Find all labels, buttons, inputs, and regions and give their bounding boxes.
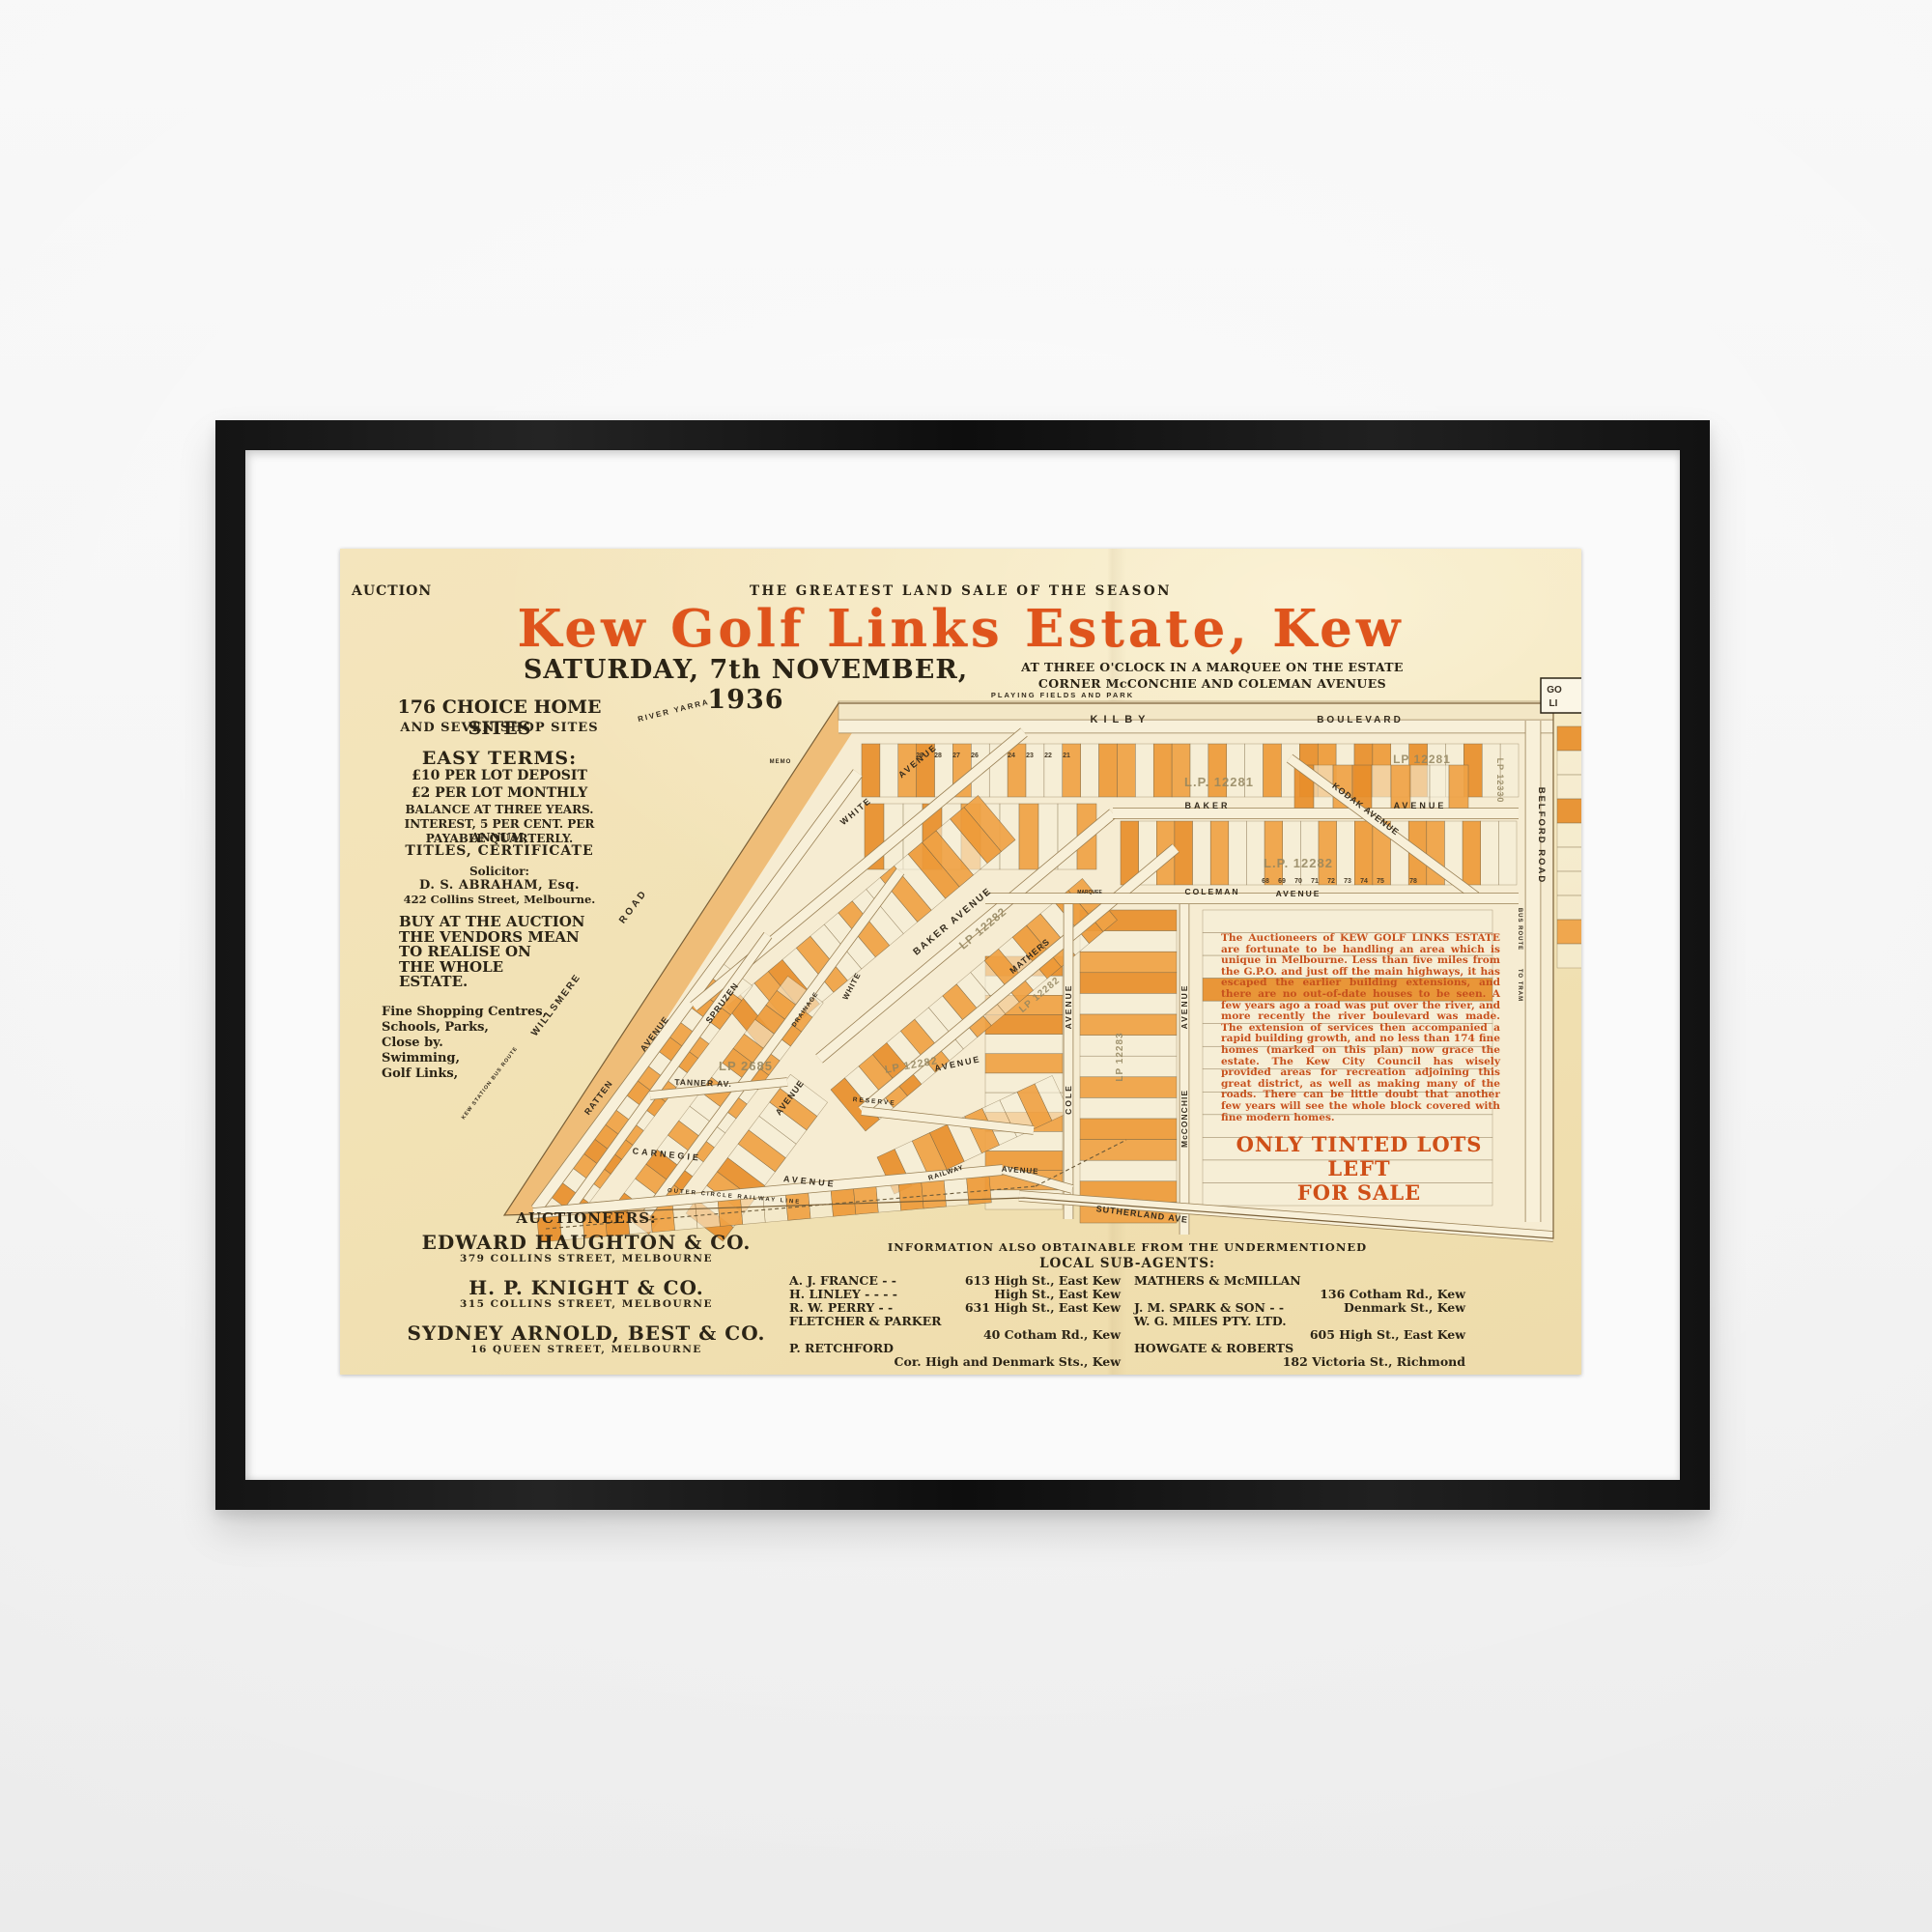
lot xyxy=(1557,895,1581,920)
lot xyxy=(1019,804,1038,869)
lot-number: 74 xyxy=(1360,878,1368,885)
street-label: WILLSMERE xyxy=(529,972,583,1038)
golf-links-tag-line: LI xyxy=(1549,698,1558,709)
lot xyxy=(1080,1140,1177,1161)
street-label: BAKER xyxy=(1184,801,1230,810)
lot xyxy=(1557,751,1581,775)
sub-agent-name: HOWGATE & ROBERTS xyxy=(1134,1342,1293,1355)
tinted-lots-line1: ONLY TINTED LOTS LEFT xyxy=(1214,1132,1504,1180)
lot xyxy=(1557,847,1581,871)
street-label: ROAD xyxy=(617,888,650,926)
estate-description: The Auctioneers of KEW GOLF LINKS ESTATE… xyxy=(1221,933,1500,1123)
lot xyxy=(1080,1160,1177,1181)
lot-number: 75 xyxy=(1377,878,1384,885)
lot-number: 22 xyxy=(1044,753,1052,759)
tagline: THE GREATEST LAND SALE OF THE SEASON xyxy=(340,583,1581,599)
auctioneer-firm-name: H. P. KNIGHT & CO. xyxy=(379,1277,794,1298)
picture-frame: AUCTION THE GREATEST LAND SALE OF THE SE… xyxy=(215,420,1710,1510)
lot xyxy=(1080,1014,1177,1036)
lot xyxy=(1557,775,1581,799)
plan-number-label: L.P. 12281 xyxy=(1184,775,1254,789)
lot xyxy=(985,1054,1063,1073)
lot xyxy=(1557,920,1581,944)
street-label: KILBY xyxy=(1091,714,1151,725)
street-label: COLE xyxy=(1064,1084,1073,1115)
park-strip xyxy=(838,701,1553,721)
lot-block xyxy=(1080,910,1177,1223)
lot xyxy=(1193,821,1211,885)
street-label: KEW STATION BUS ROUTE xyxy=(461,1046,520,1122)
lot xyxy=(1080,973,1177,994)
sub-agent-address: Cor. High and Denmark Sts., Kew xyxy=(789,1355,1121,1369)
street-label: AVENUE xyxy=(1394,801,1447,810)
golf-links-tag-line: GO xyxy=(1547,685,1562,696)
lot xyxy=(1283,821,1301,885)
sub-agents-left-column: A. J. FRANCE - -613 High St., East KewH.… xyxy=(789,1274,1121,1369)
street-label: AVENUE xyxy=(1064,984,1073,1030)
sub-agents-heading2: LOCAL SUB-AGENTS: xyxy=(789,1256,1465,1271)
lot xyxy=(1080,1036,1177,1057)
sub-agent-row: FLETCHER & PARKER xyxy=(789,1315,1121,1328)
sub-agent-row: W. G. MILES PTY. LTD. xyxy=(1134,1315,1465,1328)
sub-agent-name: R. W. PERRY - - xyxy=(789,1301,893,1315)
lot-number: 27 xyxy=(952,753,960,759)
lot-number: 24 xyxy=(1008,753,1015,759)
sub-agent-row: H. LINLEY - - - -High St., East Kew xyxy=(789,1288,1121,1301)
lot xyxy=(1264,744,1282,797)
lot-block xyxy=(1121,821,1517,885)
sub-agent-row: 605 High St., East Kew xyxy=(1134,1328,1465,1342)
street-label: PLAYING FIELDS AND PARK xyxy=(991,691,1134,699)
street-label: BOULEVARD xyxy=(1317,715,1404,725)
lot xyxy=(1372,765,1391,810)
lot-number: 68 xyxy=(1262,878,1269,885)
lot xyxy=(1210,821,1229,885)
sub-agent-row: 136 Cotham Rd., Kew xyxy=(1134,1288,1465,1301)
auctioneer-firm-name: EDWARD HAUGHTON & CO. xyxy=(379,1232,794,1253)
street-label: TO TRAM xyxy=(1517,969,1522,1002)
lot-number: 26 xyxy=(971,753,979,759)
lot xyxy=(1557,944,1581,968)
sub-agent-name: H. LINLEY - - - - xyxy=(789,1288,897,1301)
sub-agent-address: 182 Victoria St., Richmond xyxy=(1134,1355,1465,1369)
auctioneer-firm-name: SYDNEY ARNOLD, BEST & CO. xyxy=(379,1322,794,1344)
sub-agent-address: Denmark St., Kew xyxy=(1344,1301,1465,1315)
sub-agent-address: 605 High St., East Kew xyxy=(1134,1328,1465,1342)
plan-number-label: LP 2685 xyxy=(719,1059,773,1073)
lot xyxy=(1117,744,1135,797)
lot-number: 69 xyxy=(1278,878,1286,885)
sub-agent-name: FLETCHER & PARKER xyxy=(789,1315,942,1328)
lot xyxy=(1080,1097,1177,1119)
lot xyxy=(1081,744,1099,797)
sub-agents-right-column: MATHERS & McMILLAN136 Cotham Rd., KewJ. … xyxy=(1134,1274,1465,1369)
golf-links-tag xyxy=(1541,678,1581,713)
lot xyxy=(1449,765,1468,810)
lot xyxy=(1080,1056,1177,1077)
plan-number-label: L.P. 12282 xyxy=(1264,856,1333,870)
lot xyxy=(1135,744,1153,797)
lot-number: 71 xyxy=(1311,878,1319,885)
sub-agent-name: A. J. FRANCE - - xyxy=(789,1274,896,1288)
lot xyxy=(1319,821,1337,885)
lot xyxy=(1153,744,1172,797)
sub-agent-row: HOWGATE & ROBERTS xyxy=(1134,1342,1465,1355)
street-label: AVENUE xyxy=(1276,889,1321,898)
lot xyxy=(1498,821,1517,885)
poster: AUCTION THE GREATEST LAND SALE OF THE SE… xyxy=(340,549,1581,1375)
sub-agents-heading1: INFORMATION ALSO OBTAINABLE FROM THE UND… xyxy=(789,1240,1465,1254)
lot xyxy=(1463,821,1481,885)
lot xyxy=(1354,821,1373,885)
lot xyxy=(1557,799,1581,823)
lot xyxy=(1481,821,1499,885)
wall: AUCTION THE GREATEST LAND SALE OF THE SE… xyxy=(0,0,1932,1932)
lot xyxy=(1557,823,1581,847)
lot xyxy=(1080,1119,1177,1140)
sub-agent-name: P. RETCHFORD xyxy=(789,1342,894,1355)
street-label: COLEMAN xyxy=(1185,887,1240,896)
sub-agent-address: 613 High St., East Kew xyxy=(965,1274,1121,1288)
plan-number-label: LP 12330 xyxy=(1495,758,1505,804)
auctioneers-block: AUCTIONEERS: EDWARD HAUGHTON & CO.379 CO… xyxy=(379,1209,794,1368)
lot-number: 21 xyxy=(1063,753,1070,759)
lot-block xyxy=(1557,726,1581,968)
lot xyxy=(1557,871,1581,895)
sub-agent-row: P. RETCHFORD xyxy=(789,1342,1121,1355)
lot xyxy=(985,1035,1063,1054)
lot xyxy=(1264,821,1283,885)
sub-agent-address: 136 Cotham Rd., Kew xyxy=(1134,1288,1465,1301)
lot xyxy=(1080,952,1177,973)
mat-board: AUCTION THE GREATEST LAND SALE OF THE SE… xyxy=(245,450,1680,1480)
lot xyxy=(1080,1077,1177,1098)
street-label: McCONCHIE xyxy=(1179,1090,1189,1148)
sub-agent-address: 40 Cotham Rd., Kew xyxy=(789,1328,1121,1342)
poster-title: Kew Golf Links Estate, Kew xyxy=(340,599,1581,659)
plan-number-label: LP 12283 xyxy=(1115,1032,1125,1081)
auctioneer-firm-address: 315 COLLINS STREET, MELBOURNE xyxy=(379,1298,794,1310)
sub-agent-row: J. M. SPARK & SON - -Denmark St., Kew xyxy=(1134,1301,1465,1315)
sub-agent-address: High St., East Kew xyxy=(994,1288,1121,1301)
sub-agents-columns: A. J. FRANCE - -613 High St., East KewH.… xyxy=(789,1274,1465,1369)
street-label: MEMO xyxy=(770,759,792,765)
lot xyxy=(1203,910,1492,933)
lot-number: 78 xyxy=(1409,878,1417,885)
lot-number: 23 xyxy=(1026,753,1034,759)
lot-number: 28 xyxy=(934,753,942,759)
lot xyxy=(1080,993,1177,1014)
auctioneer-firm-address: 379 COLLINS STREET, MELBOURNE xyxy=(379,1253,794,1264)
sub-agent-row: R. W. PERRY - -631 High St., East Kew xyxy=(789,1301,1121,1315)
sub-agents-block: INFORMATION ALSO OBTAINABLE FROM THE UND… xyxy=(789,1240,1465,1369)
lot xyxy=(880,744,898,797)
amenity-line: Close by. xyxy=(382,1036,443,1050)
sub-agent-address: 631 High St., East Kew xyxy=(965,1301,1121,1315)
street-label: TANNER AV. xyxy=(674,1077,732,1089)
sub-agent-row: 182 Victoria St., Richmond xyxy=(1134,1355,1465,1369)
sub-agent-row: MATHERS & McMILLAN xyxy=(1134,1274,1465,1288)
street-label: BELFORD ROAD xyxy=(1536,787,1547,885)
sub-agent-row: 40 Cotham Rd., Kew xyxy=(789,1328,1121,1342)
auctioneers-heading: AUCTIONEERS: xyxy=(379,1209,794,1227)
lot xyxy=(1246,821,1264,885)
lot xyxy=(1337,821,1355,885)
firms-list: EDWARD HAUGHTON & CO.379 COLLINS STREET,… xyxy=(379,1232,794,1355)
sub-agent-row: A. J. FRANCE - -613 High St., East Kew xyxy=(789,1274,1121,1288)
auctioneer-firm-address: 16 QUEEN STREET, MELBOURNE xyxy=(379,1344,794,1355)
street-label: RIVER YARRA xyxy=(637,697,710,724)
lot-number: 72 xyxy=(1327,878,1335,885)
tinted-lots-note: ONLY TINTED LOTS LEFT FOR SALE xyxy=(1214,1132,1504,1205)
lot-number: 73 xyxy=(1344,878,1351,885)
street-label: AVENUE xyxy=(1179,984,1189,1030)
sub-agent-name: W. G. MILES PTY. LTD. xyxy=(1134,1315,1287,1328)
sub-agent-name: J. M. SPARK & SON - - xyxy=(1134,1301,1284,1315)
lot xyxy=(1229,821,1247,885)
lot xyxy=(862,744,880,797)
street-label: BUS ROUTE xyxy=(1517,908,1522,951)
sub-agent-row: Cor. High and Denmark Sts., Kew xyxy=(789,1355,1121,1369)
plan-number-label: LP 12281 xyxy=(1393,753,1451,766)
sub-agent-name: MATHERS & McMILLAN xyxy=(1134,1274,1301,1288)
street-label: MARQUEE xyxy=(1077,890,1102,895)
lot-number: 70 xyxy=(1294,878,1302,885)
lot xyxy=(1099,744,1118,797)
lot xyxy=(1557,726,1581,751)
lot xyxy=(1300,821,1319,885)
tinted-lots-line2: FOR SALE xyxy=(1214,1180,1504,1205)
